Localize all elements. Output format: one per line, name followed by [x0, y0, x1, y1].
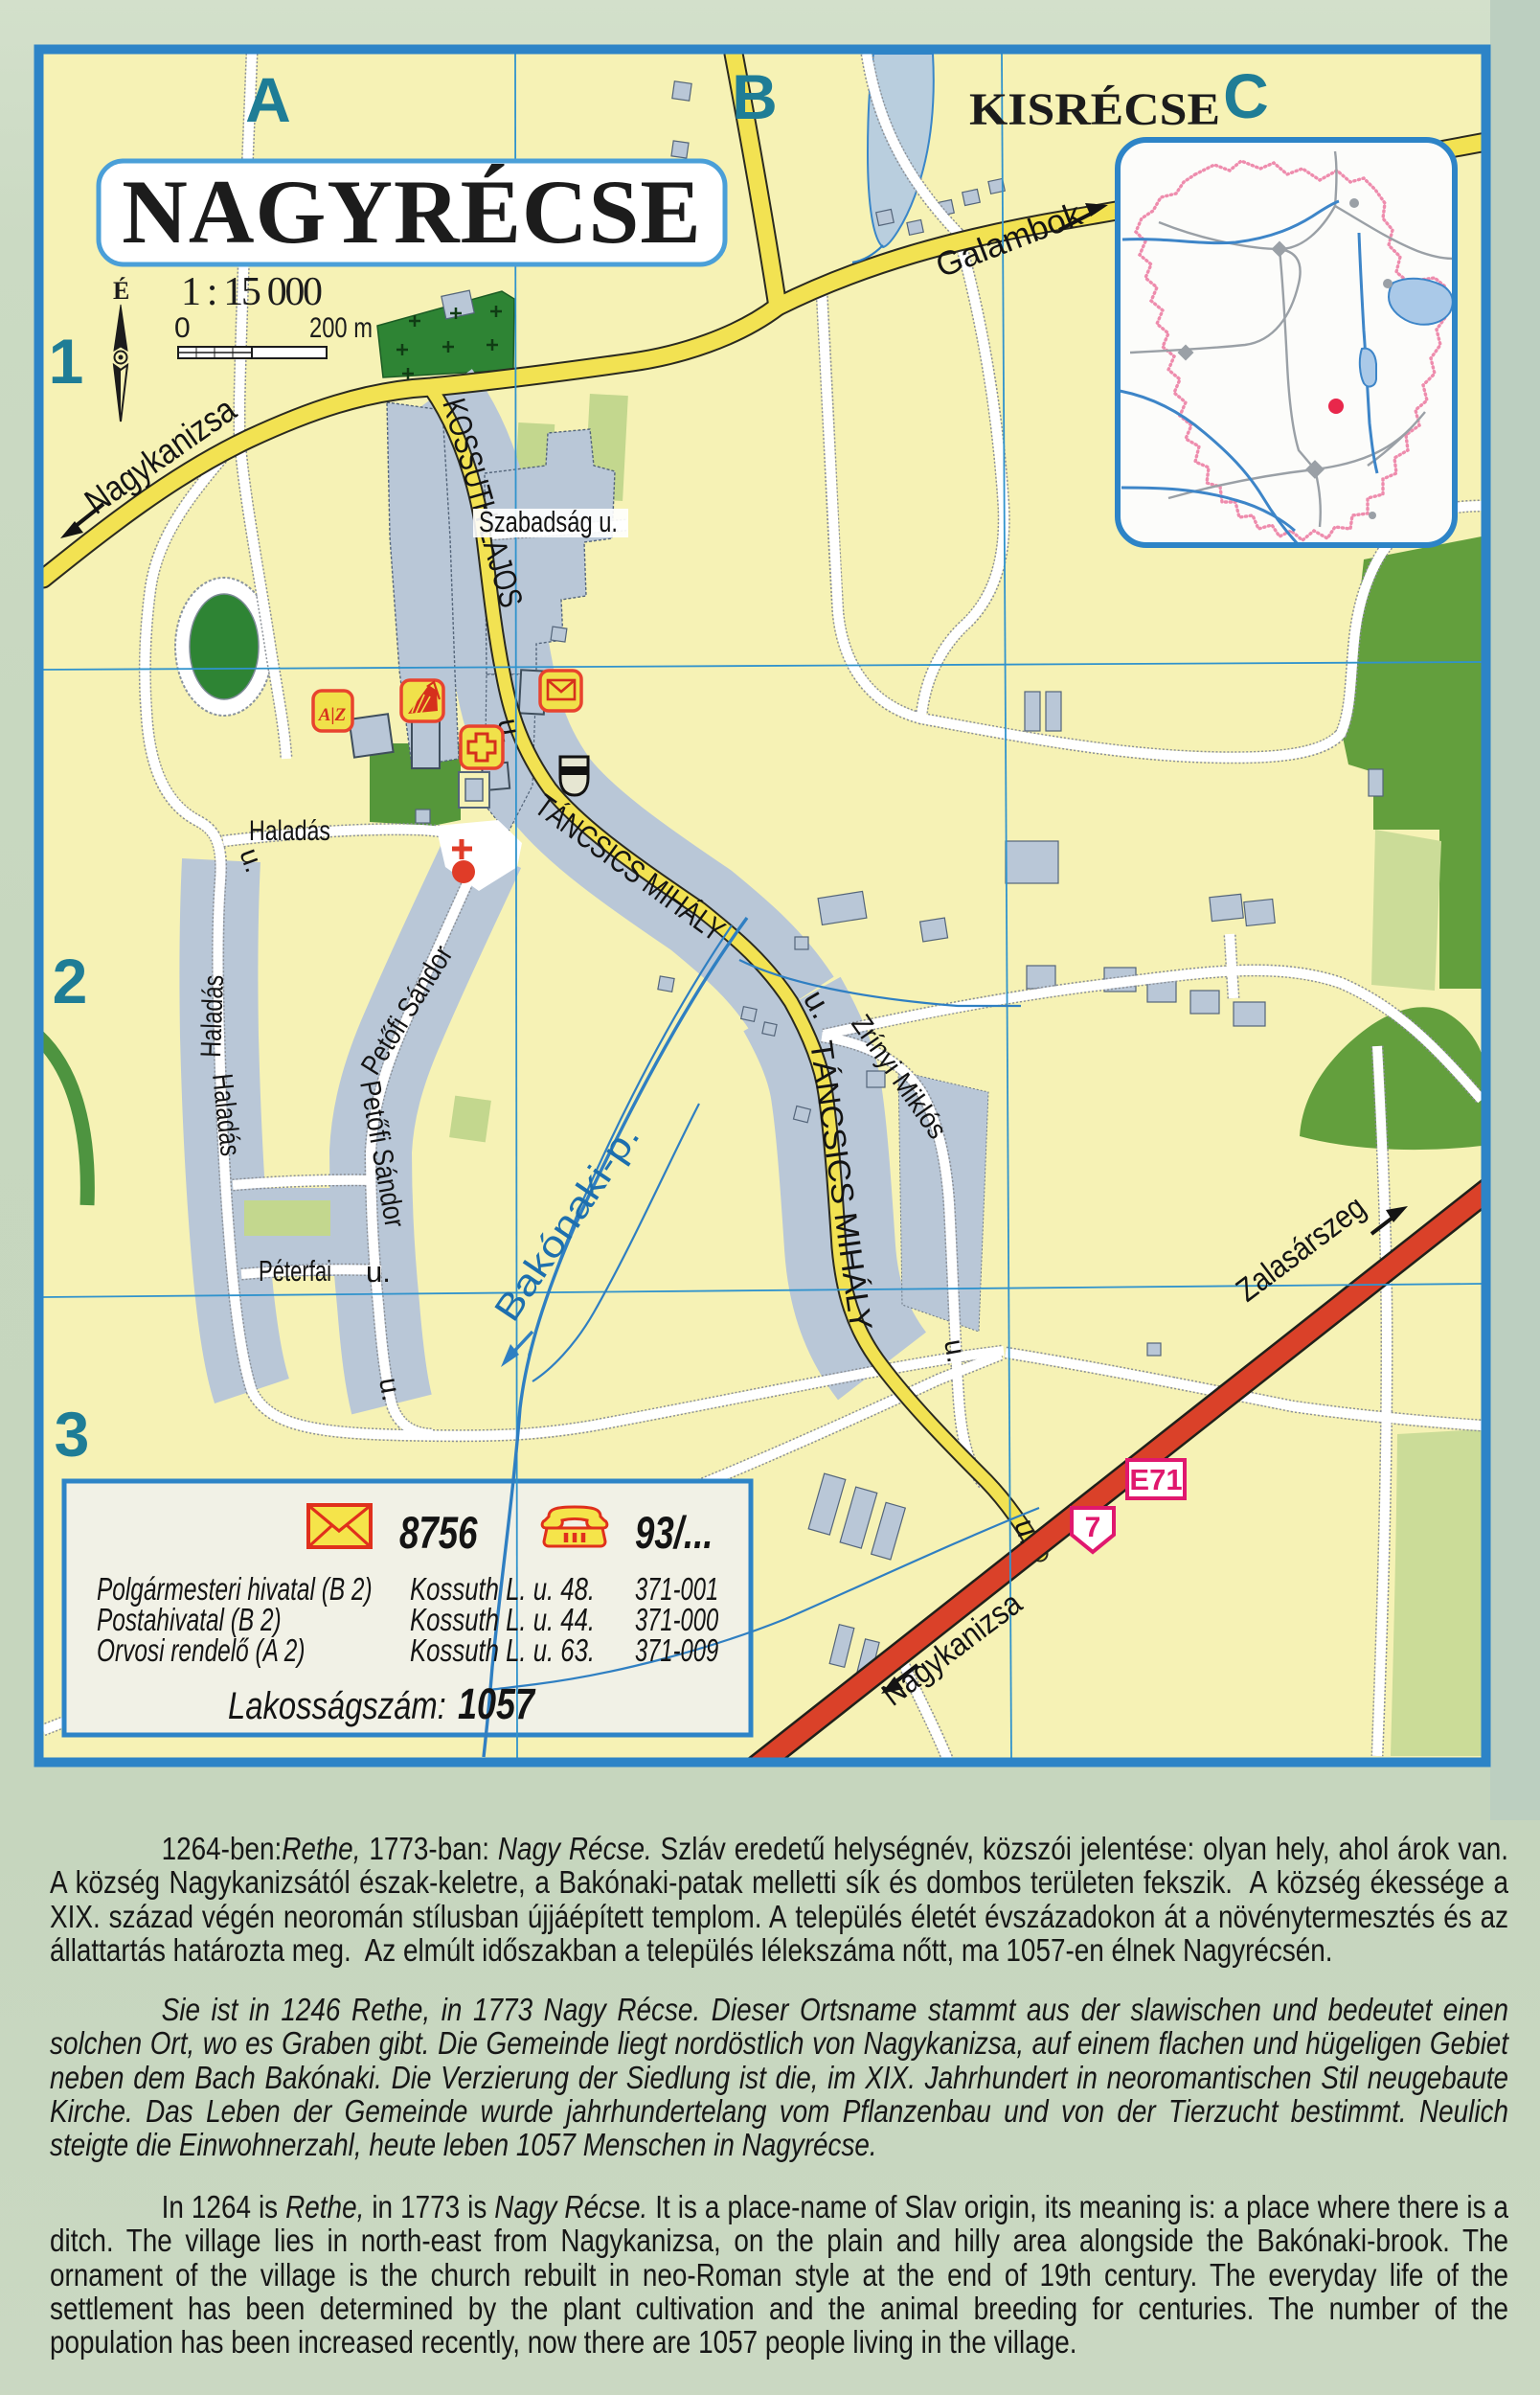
- svg-text:Haladás: Haladás: [249, 815, 330, 847]
- svg-text:1: 1: [49, 326, 84, 397]
- svg-text:KISRÉCSE: KISRÉCSE: [969, 84, 1220, 135]
- svg-text:NAGYRÉCSE: NAGYRÉCSE: [122, 161, 702, 262]
- svg-text:371-009: 371-009: [635, 1633, 718, 1669]
- svg-text:Lakosságszám:: Lakosságszám:: [228, 1684, 446, 1727]
- svg-text:0: 0: [174, 312, 191, 344]
- svg-text:u.: u.: [366, 1255, 391, 1289]
- svg-text:8756: 8756: [399, 1508, 478, 1558]
- svg-text:A|Z: A|Z: [318, 705, 347, 725]
- svg-text:E71: E71: [1129, 1463, 1182, 1496]
- svg-text:É: É: [113, 277, 129, 305]
- svg-text:Haladás: Haladás: [195, 974, 230, 1058]
- svg-text:A: A: [245, 64, 291, 135]
- svg-text:1 : 15 000: 1 : 15 000: [181, 270, 323, 314]
- svg-text:2: 2: [53, 946, 88, 1016]
- svg-text:Szabadság u.: Szabadság u.: [479, 505, 618, 538]
- svg-text:3: 3: [55, 1399, 90, 1470]
- svg-text:Orvosi rendelő (A 2): Orvosi rendelő (A 2): [97, 1634, 306, 1669]
- svg-text:Polgármesteri hivatal (B 2): Polgármesteri hivatal (B 2): [97, 1573, 373, 1608]
- svg-text:Kossuth L. u. 63.: Kossuth L. u. 63.: [410, 1633, 595, 1669]
- svg-text:200 m: 200 m: [309, 312, 373, 344]
- svg-text:7: 7: [1085, 1512, 1101, 1543]
- svg-text:Postahivatal (B 2): Postahivatal (B 2): [97, 1604, 282, 1638]
- svg-text:Péterfai: Péterfai: [259, 1254, 331, 1288]
- svg-text:C: C: [1223, 60, 1269, 131]
- svg-text:B: B: [732, 61, 778, 132]
- svg-text:1057: 1057: [458, 1679, 536, 1728]
- svg-text:93/...: 93/...: [635, 1508, 713, 1558]
